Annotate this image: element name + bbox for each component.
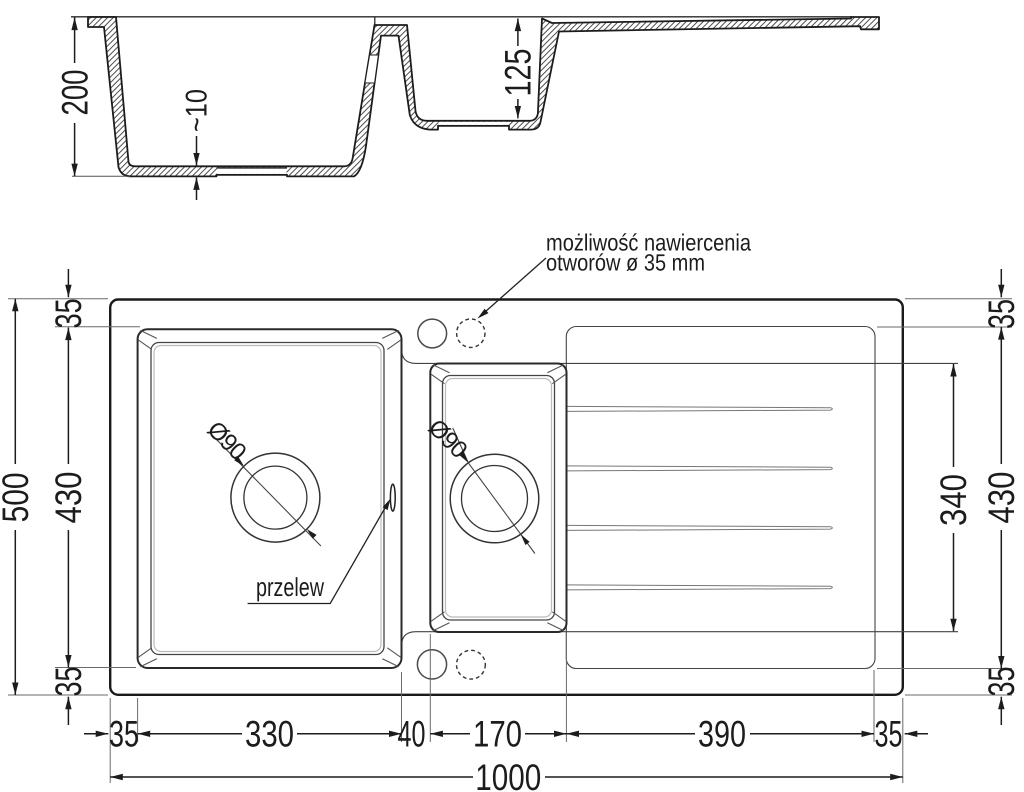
svg-text:35: 35	[981, 299, 1022, 329]
svg-text:200: 200	[54, 70, 95, 116]
svg-text:35: 35	[875, 713, 903, 754]
svg-text:340: 340	[933, 474, 974, 526]
svg-text:35: 35	[981, 667, 1022, 697]
svg-text:przelew: przelew	[256, 572, 324, 602]
svg-text:1000: 1000	[475, 757, 541, 792]
svg-text:430: 430	[48, 472, 89, 524]
svg-text:330: 330	[245, 713, 294, 754]
svg-text:430: 430	[981, 472, 1022, 524]
svg-text:500: 500	[0, 472, 36, 522]
svg-text:35: 35	[48, 298, 89, 328]
svg-text:35: 35	[109, 713, 139, 754]
svg-text:35: 35	[48, 667, 89, 697]
svg-text:170: 170	[473, 713, 522, 754]
svg-text:otworów ø 35 mm: otworów ø 35 mm	[546, 250, 705, 276]
svg-text:40: 40	[398, 713, 426, 754]
svg-text:125: 125	[498, 49, 539, 97]
svg-text:390: 390	[698, 713, 746, 754]
svg-text:~10: ~10	[181, 89, 214, 132]
